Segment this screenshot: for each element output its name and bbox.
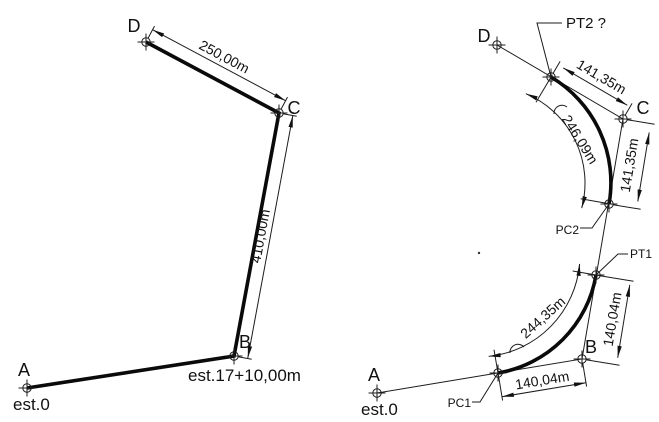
dimension-line — [153, 30, 286, 101]
point-marker-pt2 — [543, 69, 560, 86]
dim-label-tangent2-top: 141,35m — [574, 56, 629, 97]
extension-line — [586, 360, 620, 366]
dimension-bc: 410,00m — [238, 114, 297, 360]
point-marker-pc1 — [490, 365, 507, 382]
point-marker-d — [138, 34, 155, 51]
point-label-d: D — [128, 16, 141, 36]
extension-line — [625, 103, 632, 115]
point-marker-d — [489, 37, 506, 54]
point-label-b: B — [239, 332, 251, 352]
leader-pc1 — [472, 373, 498, 402]
point-label-c: C — [637, 98, 650, 118]
dimension-arc1-length: 244,35m — [489, 264, 601, 377]
station-label-a: est.0 — [361, 400, 398, 419]
point-marker-a — [369, 385, 386, 402]
curve-point-label-pc2: PC2 — [556, 223, 580, 237]
extension-line — [613, 205, 641, 210]
extension-line — [148, 26, 155, 38]
dimension-arc — [526, 94, 585, 208]
dimension-arc2-length: 246,09m — [526, 75, 612, 208]
dimension-dc: 250,00m — [148, 26, 288, 109]
curve-point-label-pt2: PT2 ? — [566, 15, 606, 32]
arc-length-symbol — [554, 105, 567, 114]
curve-point-label-pt1: PT1 — [630, 247, 652, 261]
station-label-a: est.0 — [13, 395, 50, 414]
station-label-b: est.17+10,00m — [188, 366, 301, 385]
leader-pt2 — [537, 23, 562, 77]
extension-line — [627, 120, 655, 125]
extension-line — [600, 276, 634, 282]
dimension-arc — [489, 264, 580, 357]
point-label-d: D — [478, 26, 491, 46]
dim-label-tangent1-bottom: 140,04m — [514, 368, 570, 393]
point-marker-pc2 — [601, 196, 618, 213]
curve-point-label-pc1: PC1 — [448, 396, 472, 410]
survey-drawing-stage: 250,00m 410,00m A B C D est.0 est.17+10,… — [0, 0, 659, 422]
point-label-b: B — [585, 337, 597, 357]
point-marker-c — [271, 105, 288, 122]
point-label-c: C — [288, 98, 301, 118]
right-diagram: 140,04m 140,04m 244,35m 141,35m — [361, 15, 655, 419]
leader-pt1 — [596, 254, 628, 275]
point-marker-a — [19, 380, 36, 397]
extension-line — [238, 357, 252, 360]
dim-label-bc: 410,00m — [247, 208, 273, 264]
dim-label-dc: 250,00m — [197, 37, 253, 77]
extension-line — [536, 75, 552, 103]
stray-dot — [478, 252, 480, 254]
dim-label-tangent2-right: 141,35m — [617, 137, 642, 193]
extension-line — [553, 61, 560, 73]
point-label-a: A — [368, 365, 380, 385]
point-marker-c — [615, 111, 632, 128]
point-label-a: A — [18, 360, 30, 380]
left-diagram: 250,00m 410,00m A B C D est.0 est.17+10,… — [13, 16, 301, 414]
survey-drawing: 250,00m 410,00m A B C D est.0 est.17+10,… — [0, 0, 659, 422]
dimension-tangent2-right: 141,35m — [613, 120, 655, 210]
